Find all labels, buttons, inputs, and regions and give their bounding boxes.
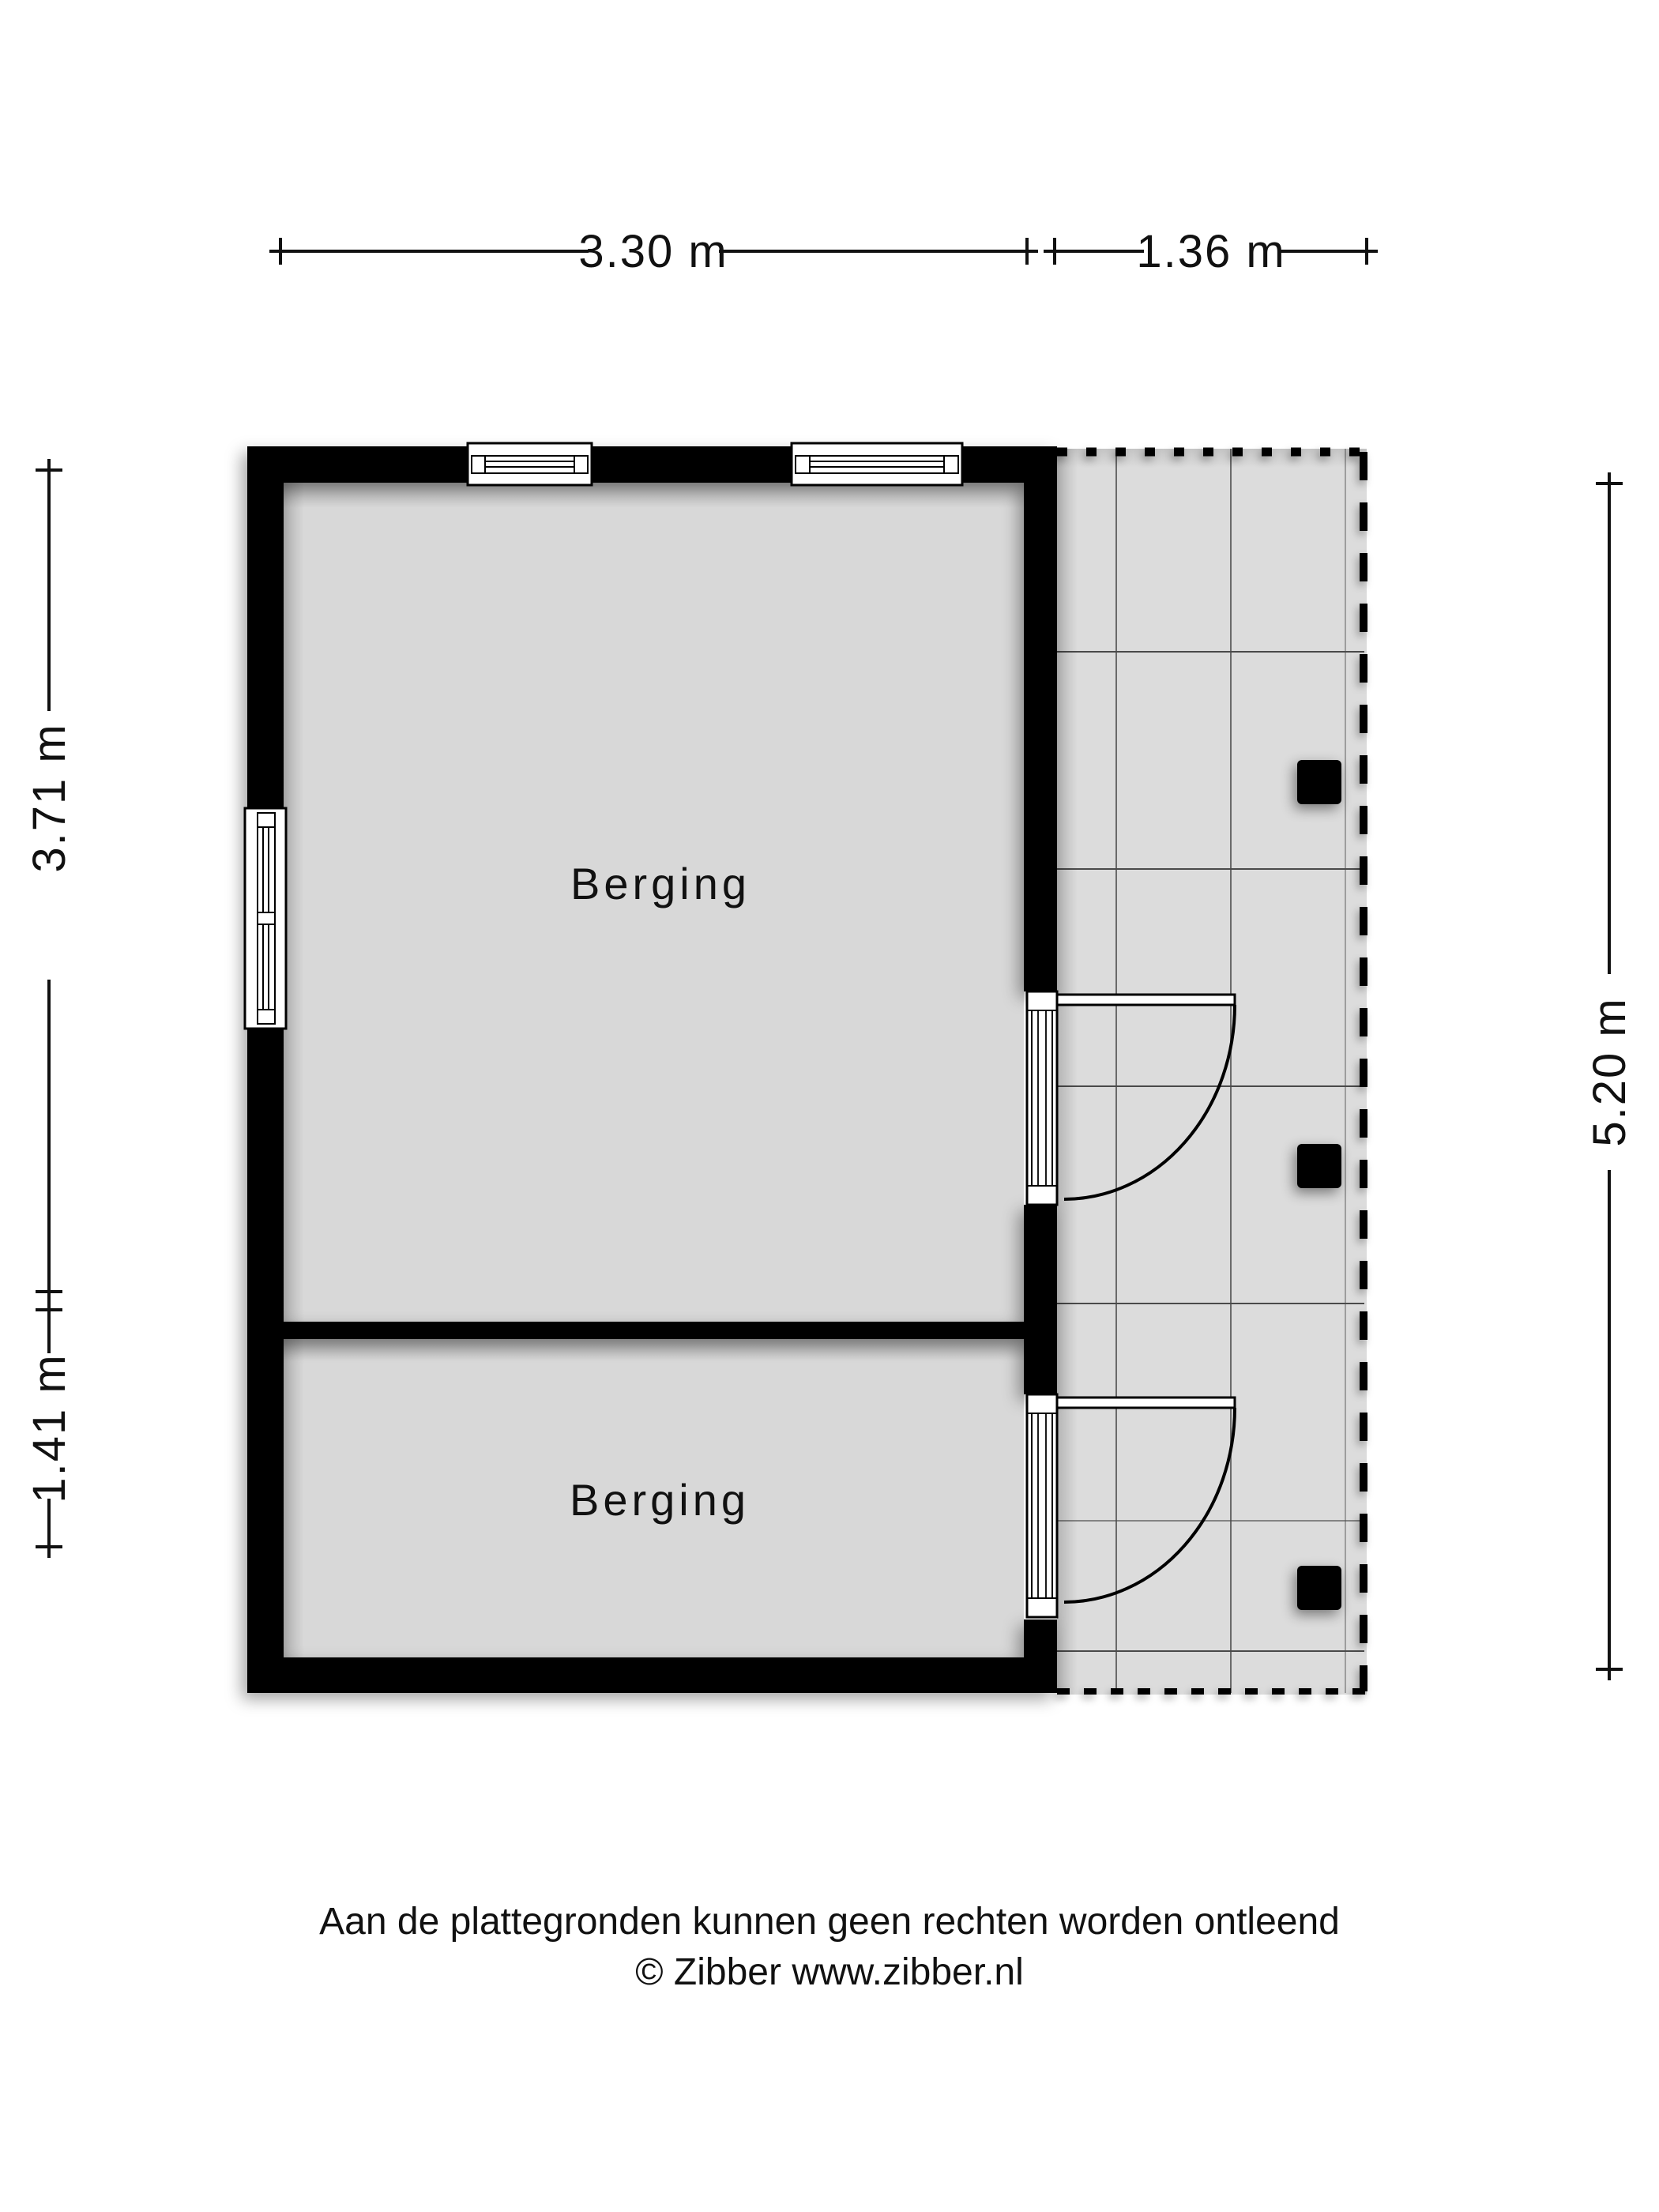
room-upper-top-shade: [284, 483, 1024, 508]
dimension-label: 3.30 m: [578, 226, 728, 277]
dimension-right-total: 5.20 m: [1584, 472, 1635, 1680]
footer-disclaimer: Aan de plattegronden kunnen geen rechten…: [319, 1901, 1340, 1943]
room-lower-left-shade: [284, 1339, 304, 1657]
dimension-label: 5.20 m: [1584, 997, 1635, 1146]
wall-left: [247, 446, 284, 1693]
window-symbol-left: [245, 808, 286, 1029]
window-symbol-top-left: [468, 443, 592, 485]
terrace-post: [1297, 1144, 1341, 1188]
dimension-top-terrace: 1.36 m: [1044, 226, 1378, 277]
room-label-upper: Berging: [570, 859, 750, 908]
door-leaf: [1057, 1398, 1235, 1408]
wall-right-middle: [1024, 1205, 1057, 1394]
terrace-post: [1297, 760, 1341, 804]
footer-credit: © Zibber www.zibber.nl: [635, 1951, 1024, 1993]
terrace-post: [1297, 1566, 1341, 1610]
wall-divider: [247, 1322, 1024, 1339]
footer: Aan de plattegronden kunnen geen rechten…: [319, 1901, 1340, 1993]
door-leaf: [1057, 995, 1235, 1005]
wall-bottom: [247, 1657, 1057, 1693]
dimension-label: 1.36 m: [1136, 226, 1285, 277]
dimension-top-main: 3.30 m: [269, 226, 1038, 277]
window-icon: [468, 443, 592, 485]
dimension-left-upper: 3.71 m: [24, 459, 75, 1303]
wall-right-upper: [1024, 446, 1057, 991]
floorplan-canvas: Berging Berging 3.30 m 1.36 m 3.71 m: [0, 0, 1659, 2212]
room-lower-top-shade: [284, 1339, 1024, 1361]
window-icon: [245, 808, 286, 1029]
room-label-lower: Berging: [570, 1475, 750, 1525]
dimension-left-lower: 1.41 m: [24, 1299, 75, 1558]
window-icon: [792, 443, 962, 485]
wall-right-lower: [1024, 1619, 1057, 1693]
dimension-label: 3.71 m: [24, 723, 75, 872]
terrace-left-shade: [1057, 449, 1078, 1695]
dimension-label: 1.41 m: [24, 1353, 75, 1503]
window-symbol-top-right: [792, 443, 962, 485]
floorplan-page: Berging Berging 3.30 m 1.36 m 3.71 m: [0, 0, 1659, 2212]
